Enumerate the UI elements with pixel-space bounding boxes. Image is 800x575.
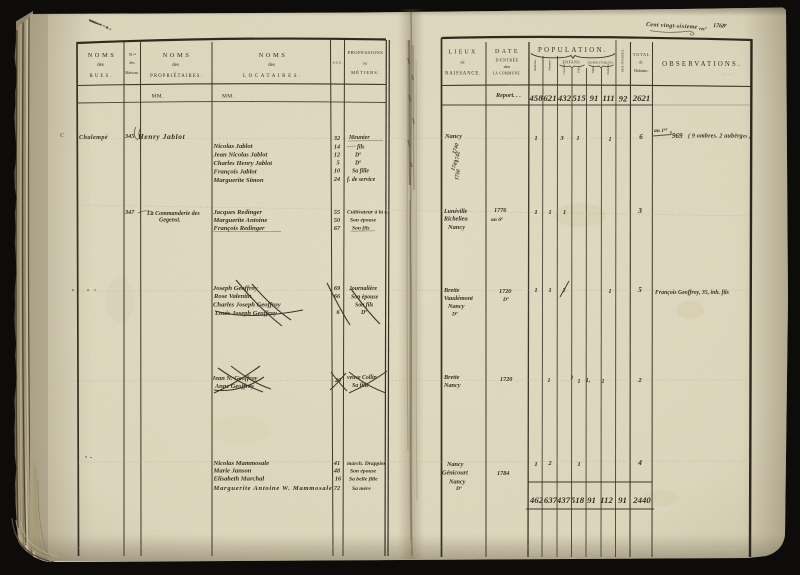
svg-text:5: 5 — [638, 286, 642, 294]
svg-text:La Commanderie des: La Commanderie des — [146, 211, 200, 217]
svg-text:1: 1 — [608, 136, 611, 143]
svg-text:72: 72 — [334, 485, 340, 492]
svg-text:Elisabeth Marchal: Elisabeth Marchal — [213, 476, 265, 483]
svg-text:Jacques Redinger: Jacques Redinger — [213, 209, 263, 216]
svg-text:PROPRIÉTAIRES.: PROPRIÉTAIRES. — [150, 73, 203, 79]
svg-text:347: 347 — [124, 209, 135, 216]
svg-text:3: 3 — [637, 206, 642, 215]
svg-text:2440: 2440 — [632, 495, 651, 505]
svg-text:DATE: DATE — [495, 49, 520, 55]
svg-text:10: 10 — [334, 168, 340, 175]
svg-text:dans: dans — [504, 65, 511, 69]
svg-text:Femmes.: Femmes. — [548, 59, 552, 70]
svg-text:Dº: Dº — [502, 297, 509, 303]
svg-text:NOMS: NOMS — [88, 52, 117, 59]
svg-text:637: 637 — [544, 495, 558, 505]
svg-text:Dº: Dº — [455, 486, 462, 492]
svg-text:Garçons.: Garçons. — [562, 63, 566, 74]
svg-text:1776: 1776 — [494, 207, 507, 214]
svg-text:2: 2 — [570, 376, 574, 381]
svg-text:AGE.: AGE. — [332, 61, 343, 65]
svg-text:Meunier: Meunier — [348, 135, 370, 141]
svg-text:François Geoffroy, 35, inh. fi: François Geoffroy, 35, inh. fils — [655, 290, 730, 296]
svg-text:des: des — [268, 63, 275, 68]
svg-text:march. Drappier: march. Drappier — [347, 461, 386, 467]
svg-text:Hommes.: Hommes. — [533, 59, 537, 71]
svg-text:Jean Nicolas Jablot: Jean Nicolas Jablot — [213, 152, 268, 159]
svg-text:Charles Joseph Geoffroy: Charles Joseph Geoffroy — [213, 302, 281, 309]
svg-text:1720: 1720 — [499, 288, 511, 295]
svg-text:OBSERVATIONS.: OBSERVATIONS. — [662, 61, 742, 68]
svg-text:Dº: Dº — [451, 312, 458, 318]
svg-text:2621: 2621 — [632, 93, 651, 103]
svg-text:Sa belle fille: Sa belle fille — [349, 477, 378, 483]
svg-text:....: .... — [722, 71, 734, 76]
svg-text:345: 345 — [124, 133, 134, 140]
svg-text:Richelieu: Richelieu — [443, 217, 468, 223]
svg-text:12: 12 — [334, 152, 340, 159]
svg-text:4: 4 — [637, 458, 642, 467]
svg-text:Habitans.: Habitans. — [634, 69, 648, 73]
svg-text:515: 515 — [572, 93, 586, 103]
svg-text:Marguerite Antoine W. Mammosal: Marguerite Antoine W. Mammosale — [213, 485, 333, 492]
svg-text:des: des — [129, 60, 135, 65]
svg-text:Nicolas Jablot: Nicolas Jablot — [213, 143, 253, 150]
svg-text:41: 41 — [333, 460, 340, 467]
svg-text:1: 1 — [534, 135, 537, 142]
svg-text:32: 32 — [333, 135, 340, 142]
svg-text:432: 432 — [557, 93, 572, 103]
svg-text:LOCATAIRES.: LOCATAIRES. — [243, 74, 303, 79]
svg-text:NOMS: NOMS — [259, 52, 288, 59]
svg-text:NOMS: NOMS — [163, 52, 192, 59]
svg-text:de: de — [639, 61, 643, 65]
svg-text:92: 92 — [619, 94, 628, 104]
svg-text:Nancy: Nancy — [448, 479, 466, 486]
svg-text:1: 1 — [548, 378, 551, 384]
svg-text:veuve Collin: veuve Collin — [347, 375, 377, 381]
svg-text:Henry Jablot: Henry Jablot — [137, 132, 186, 141]
svg-text:D'ENTRÉE: D'ENTRÉE — [495, 58, 518, 63]
svg-text:Marguerite Simon: Marguerite Simon — [213, 177, 264, 184]
svg-text:Sa fille: Sa fille — [352, 169, 369, 175]
svg-text:Son fils: Son fils — [352, 226, 370, 232]
svg-text:1784: 1784 — [497, 470, 509, 477]
svg-text:437: 437 — [556, 495, 571, 505]
svg-text:6: 6 — [639, 133, 643, 141]
svg-text:91: 91 — [587, 495, 596, 505]
svg-text:Nancy: Nancy — [447, 224, 465, 231]
svg-text:69: 69 — [334, 285, 340, 292]
svg-text:Joseph Geoffroy: Joseph Geoffroy — [212, 285, 258, 292]
svg-text:24: 24 — [333, 176, 340, 183]
svg-text:Sa mère: Sa mère — [352, 486, 371, 492]
svg-text:Rose Valentin: Rose Valentin — [213, 293, 252, 300]
svg-text:RUES.: RUES. — [89, 74, 113, 79]
svg-text:Maisons.: Maisons. — [125, 71, 139, 75]
svg-text:Cultivateur à la c.: Cultivateur à la c. — [347, 210, 388, 216]
svg-text:5: 5 — [336, 160, 339, 167]
svg-text:Nicolas Mammosale: Nicolas Mammosale — [213, 460, 270, 467]
svg-text:462: 462 — [529, 495, 544, 505]
svg-text:f. de service: f. de service — [347, 177, 376, 183]
svg-text:16: 16 — [335, 476, 342, 483]
svg-text:Gegenst.: Gegenst. — [159, 218, 181, 224]
svg-text:91: 91 — [618, 495, 627, 505]
svg-text:MM.: MM. — [222, 94, 235, 100]
svg-text:1: 1 — [576, 135, 579, 142]
svg-text:Charles Henry Jablot: Charles Henry Jablot — [214, 160, 273, 167]
svg-text:NAISSANCE.: NAISSANCE. — [445, 72, 481, 77]
svg-text:Femelles.: Femelles. — [606, 63, 610, 75]
svg-text:Marie Janson: Marie Janson — [213, 468, 252, 475]
svg-text:Son épouse: Son épouse — [350, 218, 377, 224]
svg-text:Chalempé: Chalempé — [79, 134, 108, 141]
svg-text:Dº: Dº — [354, 161, 361, 167]
svg-text:Filles.: Filles. — [577, 65, 581, 73]
svg-text:1: 1 — [548, 209, 551, 216]
svg-text:621: 621 — [543, 93, 556, 103]
svg-text:François Redinger: François Redinger — [214, 225, 266, 232]
svg-text:14: 14 — [334, 144, 340, 151]
svg-text:MÉTIERS.: MÉTIERS. — [351, 70, 380, 75]
svg-text:Nancy: Nancy — [443, 382, 461, 389]
svg-text:55: 55 — [334, 209, 340, 216]
svg-text:ou: ou — [363, 61, 367, 66]
svg-text:48: 48 — [333, 468, 340, 475]
svg-text:des: des — [97, 63, 104, 68]
svg-text:518: 518 — [571, 495, 585, 505]
svg-text:1,: 1, — [586, 378, 591, 384]
svg-text:1: 1 — [548, 287, 551, 294]
svg-text:Nancy: Nancy — [446, 461, 464, 468]
svg-text:1: 1 — [577, 461, 580, 468]
svg-text:3: 3 — [559, 135, 564, 142]
svg-text:Brette: Brette — [443, 287, 460, 294]
svg-text:des: des — [172, 63, 179, 68]
svg-text:Génicourt: Génicourt — [442, 470, 468, 477]
svg-text:111: 111 — [602, 93, 614, 103]
svg-text:Mâles.: Mâles. — [591, 65, 595, 73]
svg-text:Dº: Dº — [360, 310, 367, 316]
svg-text:1: 1 — [578, 379, 581, 385]
svg-text:Report. . .: Report. . . — [495, 92, 521, 99]
svg-text:Lunéville: Lunéville — [443, 209, 468, 215]
svg-text:1: 1 — [608, 288, 611, 295]
svg-text:1: 1 — [563, 209, 566, 216]
svg-text:2: 2 — [547, 460, 552, 467]
svg-text:1: 1 — [534, 209, 537, 216]
svg-text:TOTAL: TOTAL — [633, 52, 650, 57]
svg-text:1: 1 — [534, 461, 537, 468]
svg-text:Nancy: Nancy — [447, 303, 465, 310]
svg-text:Son épouse: Son épouse — [350, 469, 377, 475]
svg-text:2: 2 — [637, 377, 642, 384]
svg-text:969: 969 — [672, 132, 683, 140]
svg-text:50: 50 — [334, 217, 340, 224]
svg-text:DOMESTIQUES.: DOMESTIQUES. — [588, 61, 615, 65]
svg-text:Marguerite Antoine: Marguerite Antoine — [213, 217, 268, 224]
svg-text:1720: 1720 — [500, 376, 512, 383]
svg-text:MM.: MM. — [152, 94, 165, 100]
svg-text:Nancy: Nancy — [444, 133, 462, 140]
svg-text:de: de — [460, 60, 464, 65]
svg-text:Dº: Dº — [354, 153, 361, 159]
svg-text:LA COMMUNE.: LA COMMUNE. — [493, 72, 521, 76]
svg-text:François Jablot: François Jablot — [214, 169, 257, 176]
svg-text:LIEUX: LIEUX — [449, 50, 478, 56]
svg-text:Son épouse: Son épouse — [351, 295, 379, 301]
svg-text:fils: fils — [357, 145, 365, 151]
svg-text:1: 1 — [534, 287, 537, 294]
svg-text:Vaudémont: Vaudémont — [444, 295, 473, 302]
svg-text:( 9 ombres. 2 aubèrges ): ( 9 ombres. 2 aubèrges ) — [688, 133, 751, 140]
svg-text:91: 91 — [590, 93, 599, 103]
svg-text:Brette: Brette — [443, 374, 460, 381]
svg-text:POPULATION.: POPULATION. — [538, 47, 608, 54]
svg-text:112: 112 — [600, 495, 613, 505]
svg-text:1: 1 — [602, 379, 605, 385]
svg-text:67: 67 — [334, 225, 341, 232]
svg-text:458: 458 — [528, 93, 543, 103]
svg-text:PROFESSIONS: PROFESSIONS — [348, 50, 384, 55]
svg-text:MILITAIRES.: MILITAIRES. — [621, 48, 625, 72]
